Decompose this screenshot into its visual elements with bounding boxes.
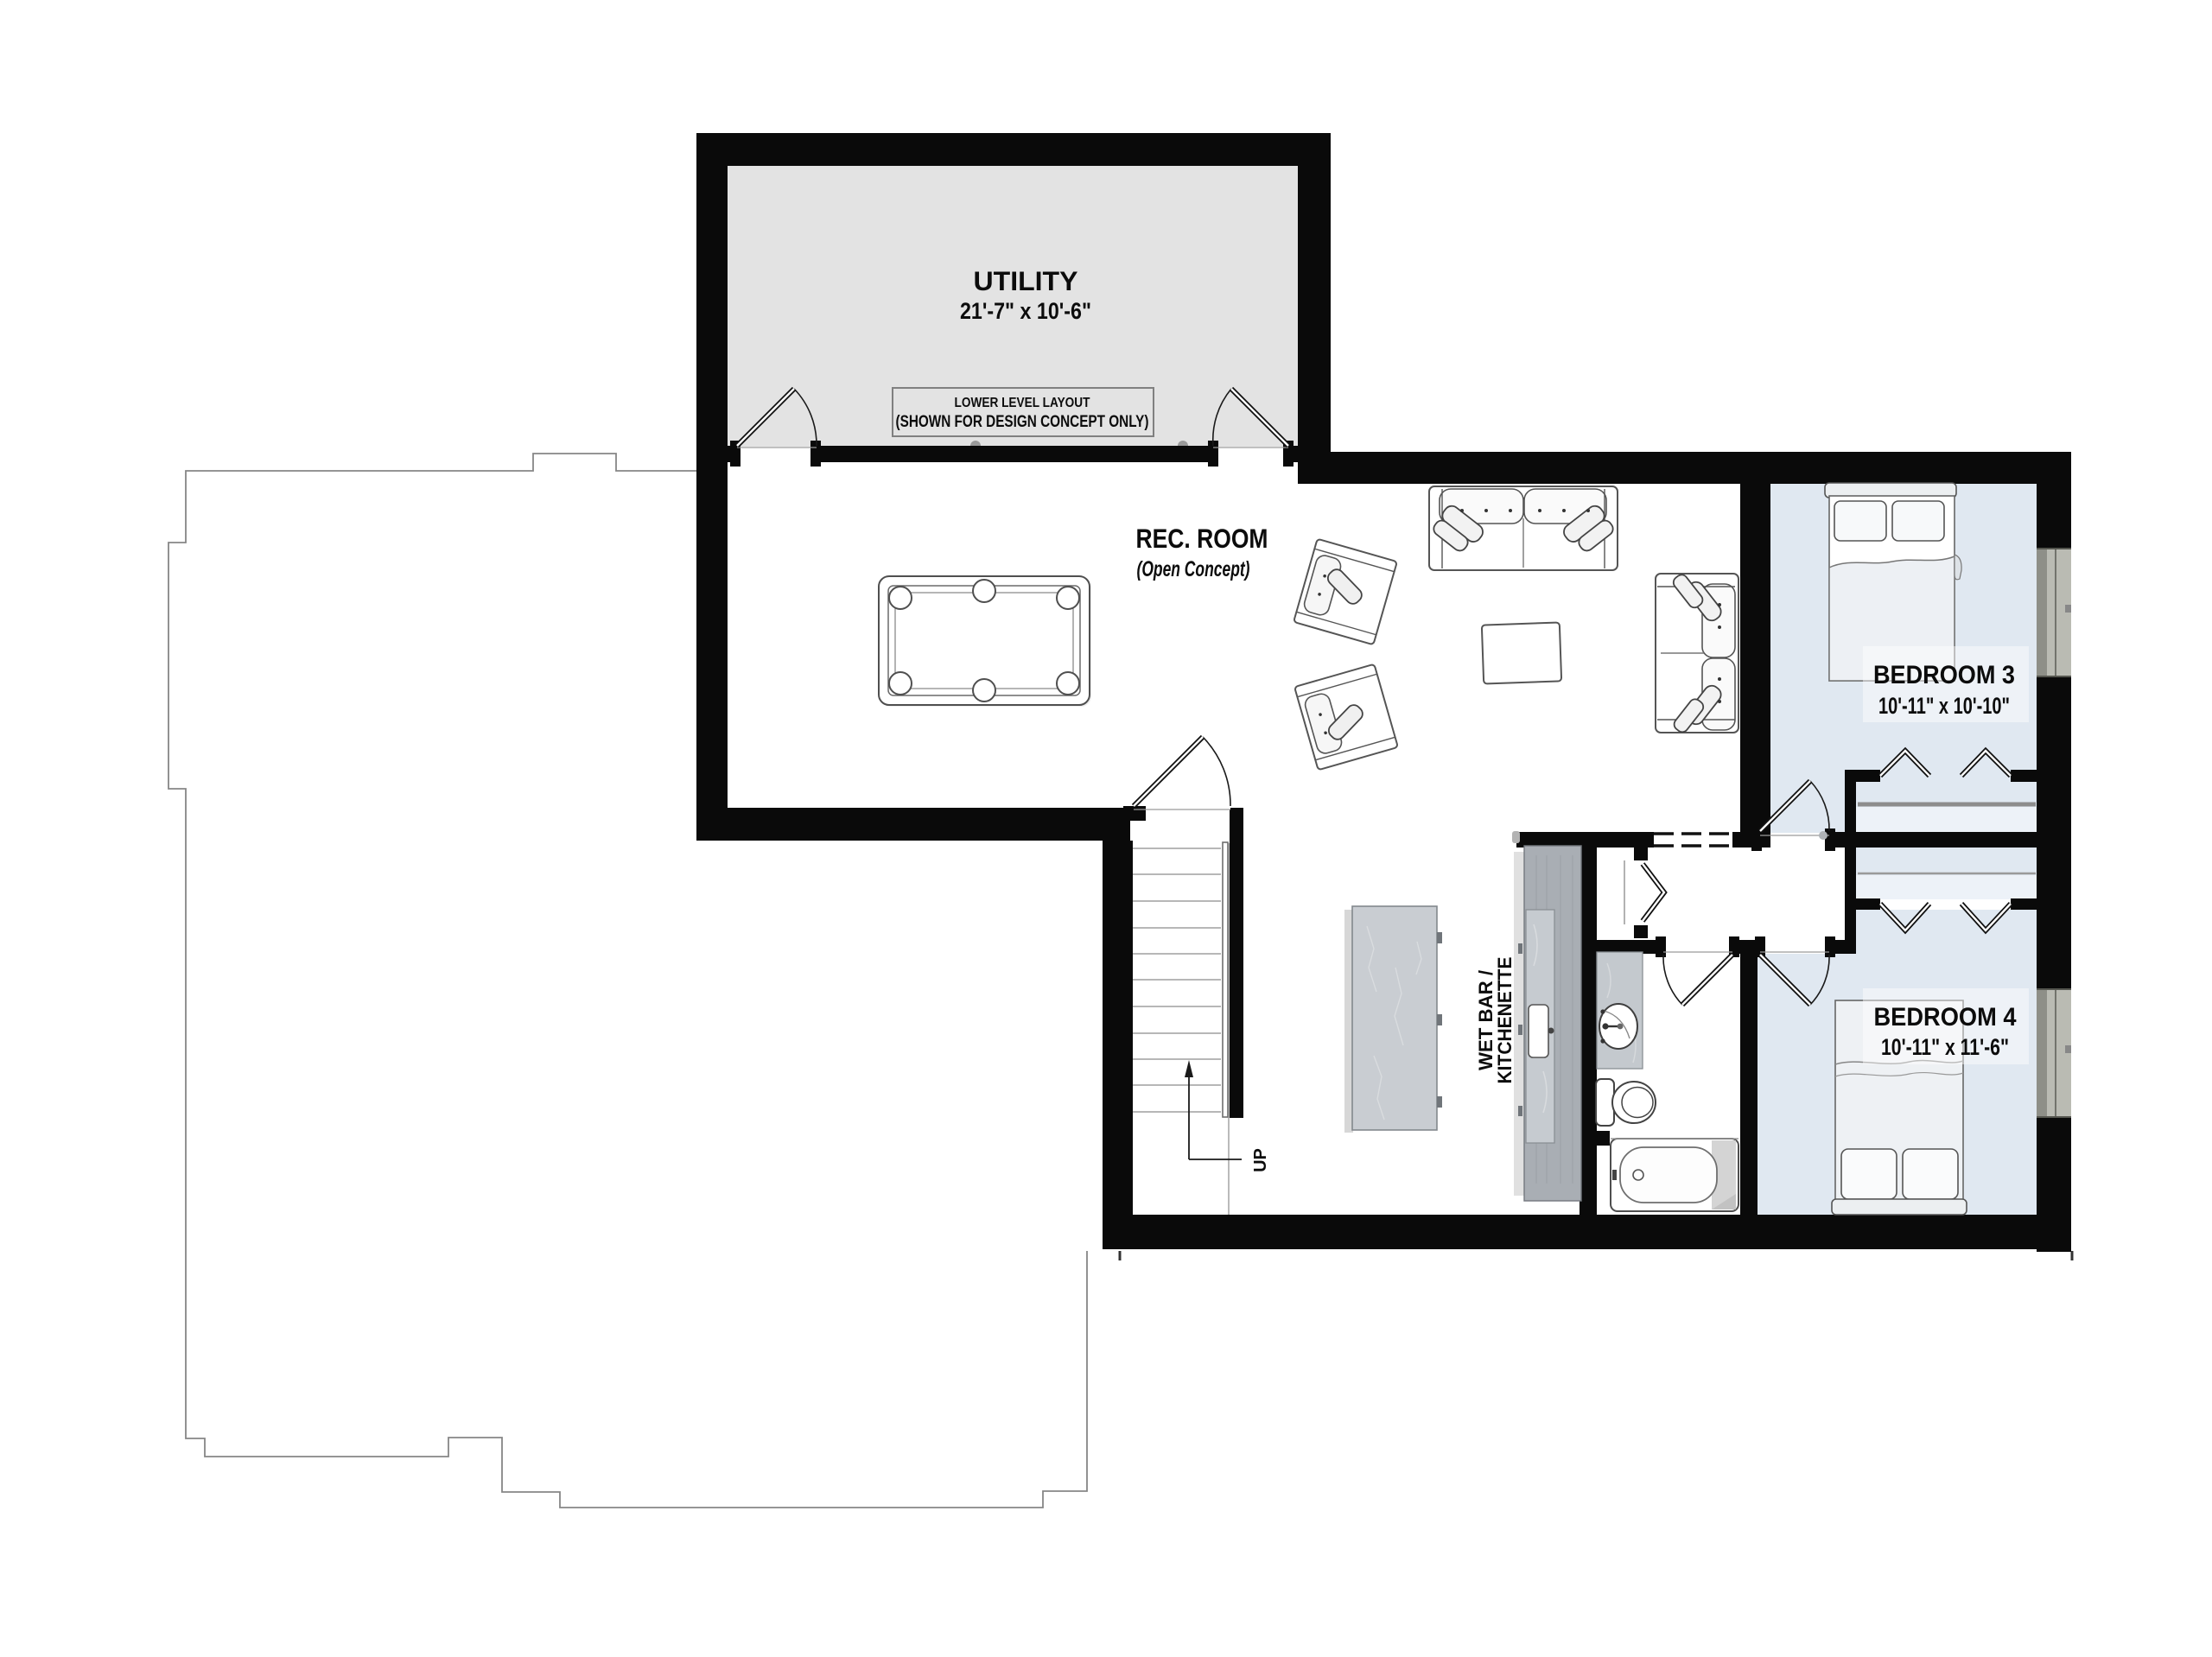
svg-text:UTILITY: UTILITY — [974, 265, 1078, 296]
svg-text:(Open Concept): (Open Concept) — [1137, 557, 1250, 581]
svg-text:REC. ROOM: REC. ROOM — [1136, 523, 1268, 554]
svg-text:BEDROOM 3: BEDROOM 3 — [1873, 661, 2015, 689]
svg-text:10'-11" x 11'-6": 10'-11" x 11'-6" — [1881, 1034, 2009, 1060]
svg-text:LOWER LEVEL LAYOUT: LOWER LEVEL LAYOUT — [955, 396, 1090, 410]
svg-text:BEDROOM 4: BEDROOM 4 — [1874, 1003, 2017, 1032]
svg-text:KITCHENETTE: KITCHENETTE — [1494, 957, 1516, 1084]
svg-text:10'-11" x 10'-10": 10'-11" x 10'-10" — [1878, 693, 2010, 719]
svg-text:21'-7" x 10'-6": 21'-7" x 10'-6" — [960, 298, 1091, 324]
svg-text:UP: UP — [1251, 1148, 1270, 1172]
svg-text:(SHOWN FOR DESIGN CONCEPT ONLY: (SHOWN FOR DESIGN CONCEPT ONLY) — [896, 413, 1149, 431]
